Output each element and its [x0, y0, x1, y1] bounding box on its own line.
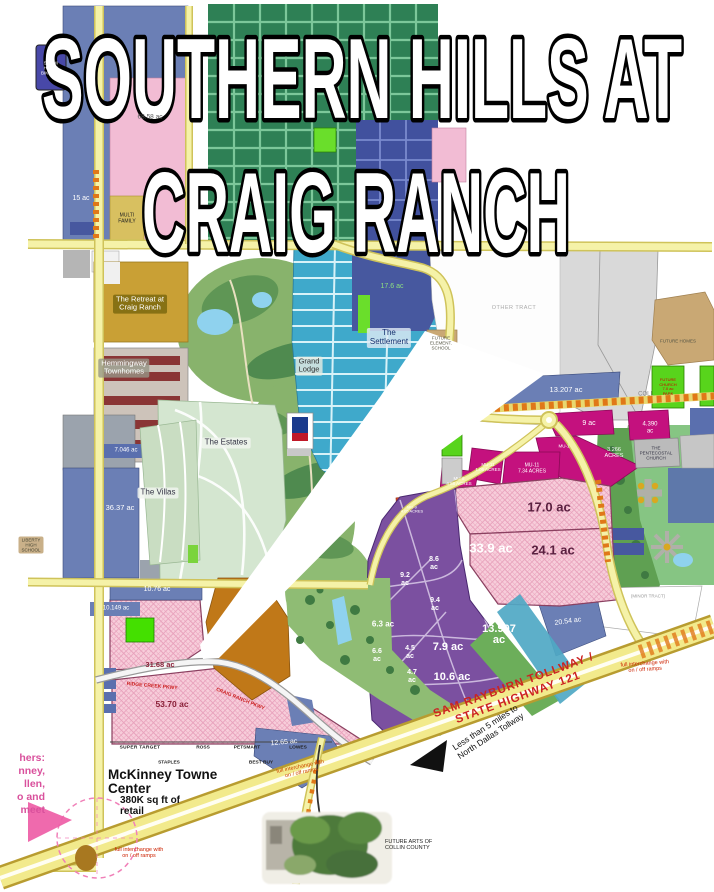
mu-11-106: MU-11 1.06 ACRES [475, 462, 500, 472]
acreage-7-046: 7.046 ac [114, 448, 137, 455]
acreage-17-0: 17.0 ac [527, 501, 570, 516]
acreage-17-6: 17.6 ac [381, 283, 404, 291]
acreage-10-149: 10.149 ac [103, 606, 129, 613]
area-villas: The Villas [138, 488, 179, 499]
tpc-logo [287, 413, 313, 456]
acreage-9-2: 9.2 ac [400, 572, 410, 588]
area-temp-church: FUTURE CHURCH 7.0 ac PARK [659, 378, 676, 396]
mu-1: MU-1 [559, 443, 570, 448]
mu-8: MU-8 4.88 ACRES [446, 476, 471, 486]
black-arrow-icon [410, 740, 447, 772]
trees-photo [262, 812, 392, 884]
area-hemmingway: Hemmingway Townhomes [98, 359, 149, 378]
acreage-4-5: 4.5 ac [405, 645, 415, 661]
parcel-green-31-68 [126, 618, 154, 642]
area-multi-family: MULTI FAMILY [118, 213, 135, 224]
note-future-arts: FUTURE ARTS OF COLLIN COUNTY [385, 839, 432, 851]
area-coll: COLL [638, 392, 654, 399]
acreage-33-9: 33.9 ac [469, 542, 512, 557]
parcel-blue-right2 [668, 468, 714, 523]
parcel-gray-right [680, 434, 714, 468]
area-other-tract: OTHER TRACT [492, 305, 537, 311]
acreage-9: 9 ac [582, 420, 595, 428]
acreage-13-207: 13.207 ac [550, 386, 583, 394]
area-future-homes: FUTURE HOMES [660, 338, 696, 343]
acreage-13-907: 13.907 ac [482, 624, 516, 646]
area-pentecostal: THE PENTECOSTAL CHURCH [640, 445, 673, 460]
parcel-lime-villas [188, 545, 198, 563]
flyer-southern-hills-map: SOUTHERN HILLS AT CRAIG RANCH 50+ MI HIK… [0, 0, 714, 892]
badge-hike-bike-label: 50+ MI HIKE & BIKE TRL [41, 60, 61, 75]
mckinney-retail-sqft: 380K sq ft of retail [120, 795, 180, 817]
acreage-15: 15 ac [72, 195, 89, 203]
area-retreat: The Retreat at Craig Ranch [113, 295, 167, 314]
mckinney-towne-center: McKinney Towne Center [108, 768, 217, 796]
acreage-4-390: 4.390 ac [642, 421, 657, 434]
acreage-53-70: 53.70 ac [155, 700, 188, 710]
note-interchange-west: full interchange with on / off ramps [115, 847, 164, 859]
mu-9: MU-9 4.05 ACRES [401, 506, 423, 515]
acreage-31-68: 31.68 ac [145, 661, 174, 669]
store-staples: STAPLES [158, 760, 180, 765]
area-liberty-high: LIBERTY HIGH SCHOOL [18, 536, 43, 553]
area-settlement: The Settlement [367, 328, 411, 348]
parcel-gray-small [63, 250, 90, 278]
acreage-7-9: 7.9 ac [433, 641, 464, 653]
corner-cities-text: hers: nney, llen, o and meet [2, 752, 45, 817]
title-line2: CRAIG RANCH [142, 150, 570, 277]
acreage-36-37: 36.37 ac [106, 504, 135, 512]
acreage-68-58: 68.58 ac [138, 113, 163, 120]
store-best-buy: BEST BUY [249, 760, 273, 765]
store-super-target: SUPER TARGET [120, 745, 161, 750]
area-estates: The Estates [202, 438, 251, 449]
parcel-tan-future-homes [652, 292, 714, 365]
acreage-10-76: 10.76 ac [144, 586, 171, 594]
title-line1: SOUTHERN HILLS AT [42, 16, 682, 143]
acreage-8-6: 8.6 ac [429, 556, 439, 572]
acreage-6-6: 6.6 ac [372, 648, 382, 664]
acreage-9-4: 9.4 ac [430, 597, 440, 613]
store-lowes: LOWES [289, 745, 307, 750]
store-petsmart: PETSMART [234, 745, 260, 750]
store-ross: ROSS [196, 745, 210, 750]
park-pond [673, 553, 693, 567]
acreage-4-7: 4.7 ac [407, 669, 417, 685]
mu-11-734: MU-11 7.34 ACRES [518, 463, 546, 474]
acreage-10-6: 10.6 ac [434, 671, 471, 683]
acreage-6-3: 6.3 ac [372, 621, 394, 630]
acreage-24-1: 24.1 ac [531, 544, 574, 559]
area-minor-tract: (MINOR TRACT) [631, 593, 665, 598]
area-future-elementary: FUTURE ELEMENT. SCHOOL [430, 335, 452, 350]
area-grand-lodge: Grand Lodge [296, 357, 323, 376]
acreage-3-266: 3.266 ACRES [605, 447, 624, 459]
